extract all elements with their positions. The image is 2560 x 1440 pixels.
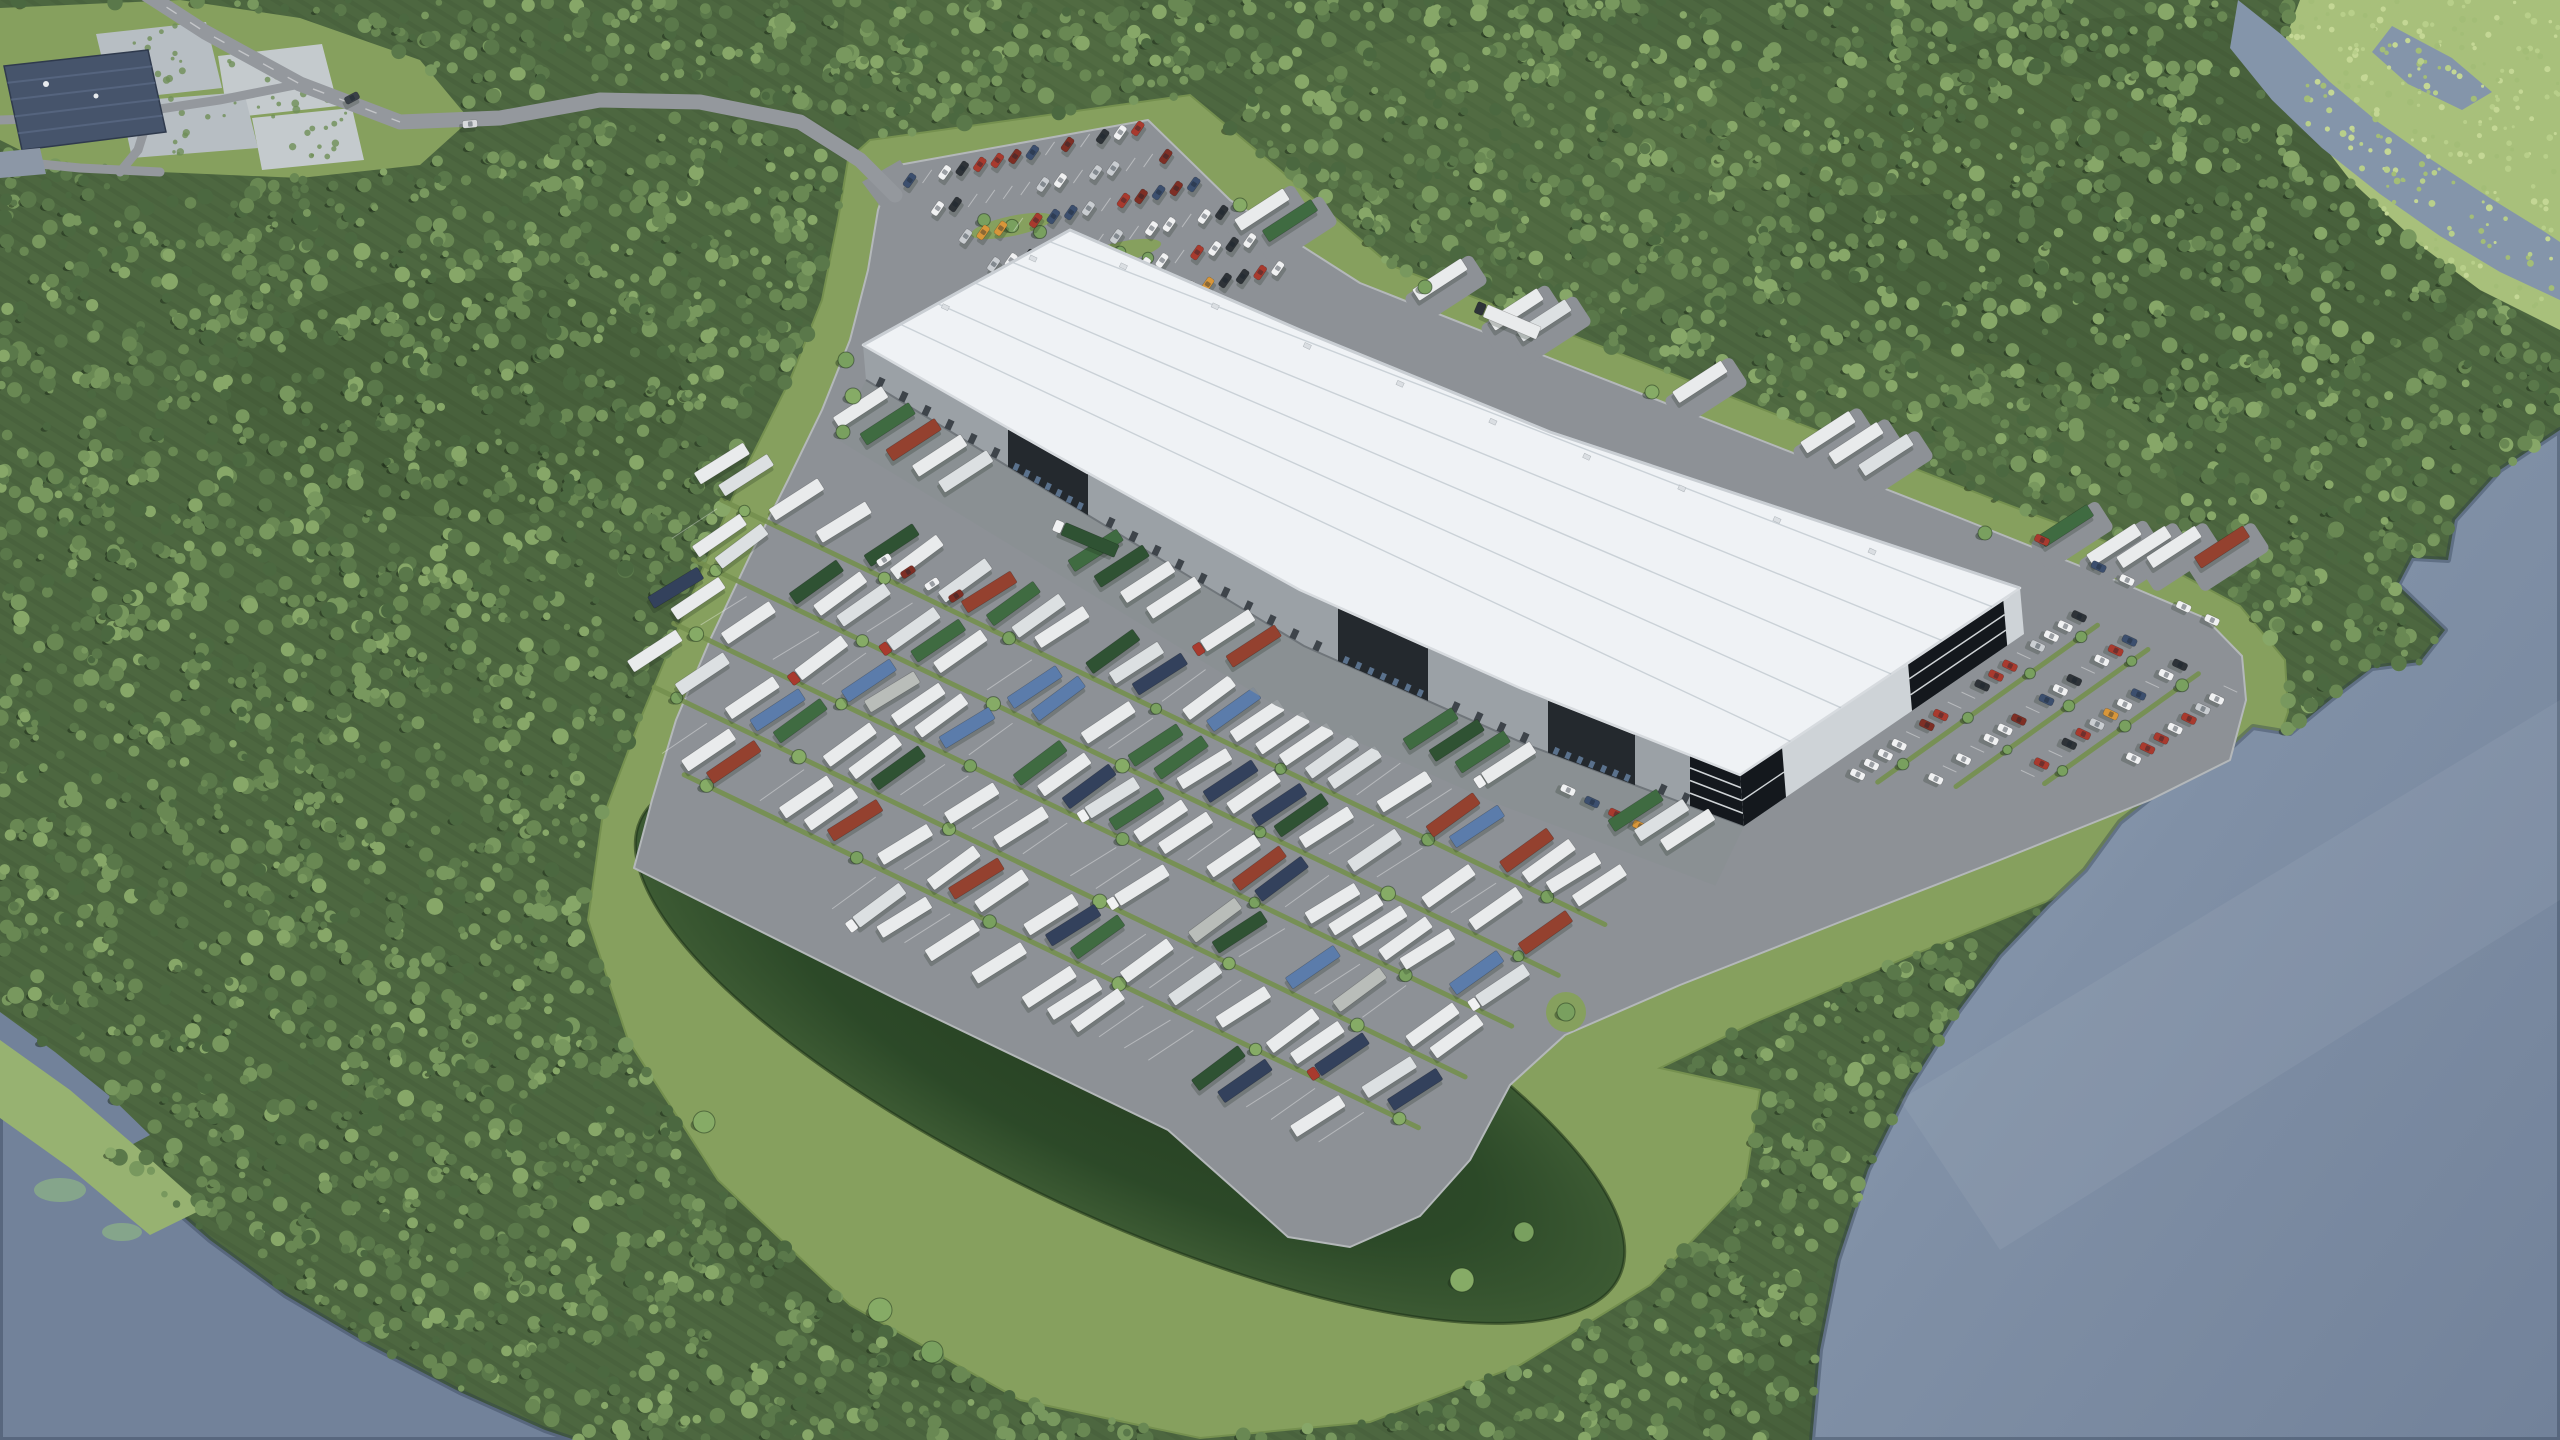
offsite-building-roof bbox=[4, 50, 166, 150]
offsite-building2-roof bbox=[0, 148, 46, 178]
aerial-render-viewport bbox=[0, 0, 2560, 1440]
aerial-render bbox=[0, 0, 2560, 1440]
graded-pad bbox=[252, 108, 364, 170]
